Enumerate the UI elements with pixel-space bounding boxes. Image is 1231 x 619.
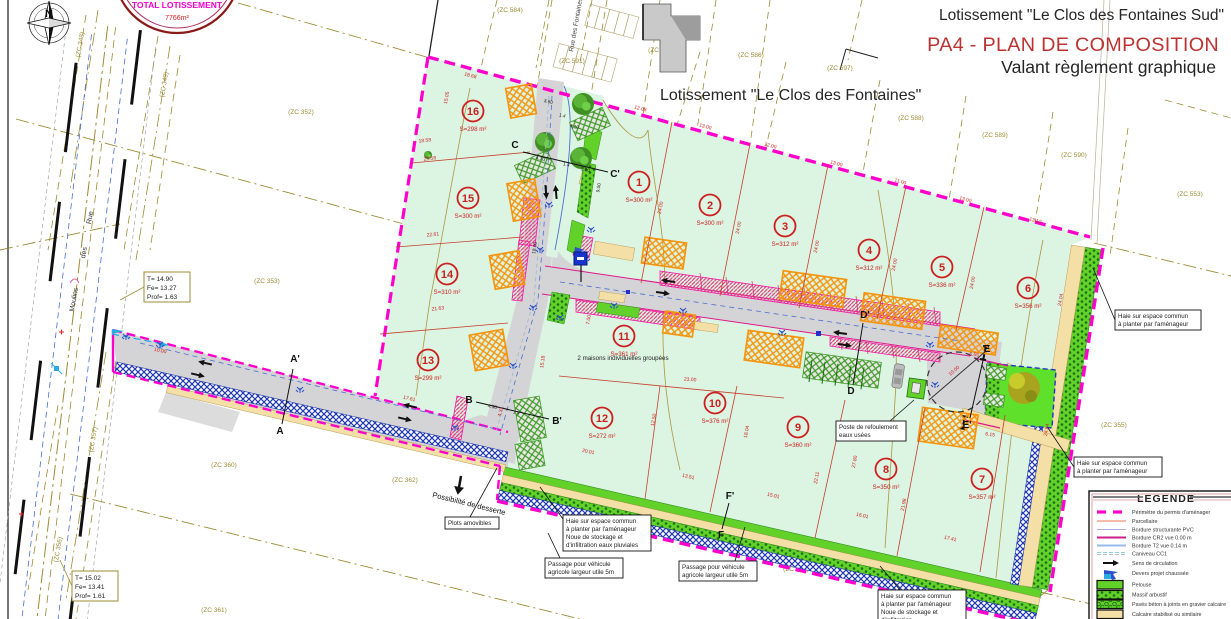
svg-text:10: 10	[709, 398, 721, 410]
svg-text:Pavés béton à joints en gravie: Pavés béton à joints en gravier calcaire	[1132, 602, 1226, 608]
svg-text:(ZC 586): (ZC 586)	[738, 52, 764, 59]
svg-text:Plots amovibles: Plots amovibles	[448, 520, 491, 527]
svg-text:à planter par l'aménageur: à planter par l'aménageur	[1077, 468, 1147, 475]
svg-text:(ZC 597): (ZC 597)	[827, 65, 853, 72]
svg-text:4: 4	[866, 245, 873, 257]
svg-text:S=356 m²: S=356 m²	[1015, 303, 1042, 310]
svg-text:TOTAL LOTISSEMENT: TOTAL LOTISSEMENT	[132, 0, 223, 10]
svg-text:E': E'	[962, 420, 971, 431]
svg-text:C: C	[511, 140, 518, 151]
svg-text:Pelouse: Pelouse	[1132, 583, 1151, 589]
svg-text:Lotissement "Le Clos des Fonta: Lotissement "Le Clos des Fontaines"	[660, 87, 921, 104]
svg-text:S=272 m²: S=272 m²	[589, 433, 616, 440]
svg-text:agricole largeur utile 5m: agricole largeur utile 5m	[548, 569, 614, 576]
svg-text:Passage pour véhicule: Passage pour véhicule	[682, 564, 745, 571]
svg-text:8: 8	[883, 464, 889, 476]
svg-text:Haie sur espace commun: Haie sur espace commun	[566, 518, 637, 525]
svg-text:(ZC 361): (ZC 361)	[201, 607, 227, 614]
svg-text:12: 12	[596, 413, 608, 425]
svg-text:11: 11	[618, 331, 630, 343]
svg-text:(ZC 355): (ZC 355)	[1101, 422, 1127, 429]
svg-text:(ZC 553): (ZC 553)	[1177, 191, 1203, 198]
svg-text:14: 14	[441, 269, 454, 281]
svg-text:F': F'	[726, 491, 735, 502]
svg-text:13: 13	[422, 355, 434, 367]
svg-text:Haie sur espace commun: Haie sur espace commun	[881, 593, 952, 600]
svg-text:S=300 m²: S=300 m²	[626, 197, 653, 204]
svg-text:9: 9	[795, 422, 801, 434]
svg-text:Fe= 13.27: Fe= 13.27	[147, 285, 177, 292]
svg-text:5: 5	[939, 262, 945, 274]
svg-text:Noue de stockage et: Noue de stockage et	[881, 609, 938, 616]
svg-text:(ZC 353): (ZC 353)	[254, 278, 280, 285]
svg-text:Bordure CR2 vue 0.00 m: Bordure CR2 vue 0.00 m	[1132, 536, 1192, 542]
svg-text:(ZC 584): (ZC 584)	[497, 7, 523, 14]
svg-text:Massif arbustif: Massif arbustif	[1132, 593, 1167, 599]
svg-text:Passage pour véhicule: Passage pour véhicule	[548, 561, 611, 568]
svg-text:Périmètre du permis d'aménager: Périmètre du permis d'aménager	[1132, 510, 1211, 516]
svg-text:D: D	[847, 386, 854, 397]
svg-text:S=299 m²: S=299 m²	[415, 375, 442, 382]
svg-text:Poste de refoulement: Poste de refoulement	[839, 424, 898, 431]
svg-text:7: 7	[979, 474, 985, 486]
svg-text:N: N	[45, 8, 53, 20]
svg-text:Devers projet chaussée: Devers projet chaussée	[1132, 571, 1189, 577]
svg-text:PA4 - PLAN DE COMPOSITION: PA4 - PLAN DE COMPOSITION	[927, 34, 1219, 56]
svg-text:d'infiltration eaux pluviales: d'infiltration eaux pluviales	[566, 542, 638, 549]
svg-text:(ZC 360): (ZC 360)	[211, 462, 237, 469]
svg-text:(ZC 589): (ZC 589)	[982, 132, 1008, 139]
svg-text:Parcellaire: Parcellaire	[1132, 519, 1157, 525]
svg-text:S=360 m²: S=360 m²	[785, 442, 812, 449]
svg-text:(ZC 590): (ZC 590)	[1061, 152, 1087, 159]
svg-text:Lotissement "Le Clos des Fonta: Lotissement "Le Clos des Fontaines Sud"	[939, 7, 1224, 24]
svg-text:Prof= 1.61: Prof= 1.61	[75, 593, 106, 600]
svg-text:Haie sur espace commun: Haie sur espace commun	[1118, 313, 1189, 320]
svg-text:T= 15.02: T= 15.02	[75, 575, 101, 582]
svg-text:Bordure structurante PVC: Bordure structurante PVC	[1132, 528, 1194, 534]
svg-text:à planter par l'aménageur: à planter par l'aménageur	[566, 526, 636, 533]
svg-text:Prof= 1.63: Prof= 1.63	[147, 294, 178, 301]
svg-text:F: F	[718, 530, 724, 541]
svg-text:2 maisons individuelles groupé: 2 maisons individuelles groupées	[577, 355, 668, 362]
svg-text:(ZC 588): (ZC 588)	[898, 115, 924, 122]
svg-text:S=312 m²: S=312 m²	[772, 241, 799, 248]
svg-text:Calcaire stabilisé ou similair: Calcaire stabilisé ou similaire	[1132, 612, 1202, 618]
svg-text:A': A'	[290, 354, 300, 365]
svg-text:(ZC 362): (ZC 362)	[392, 477, 418, 484]
svg-text:D': D'	[860, 310, 870, 321]
svg-text:S=298 m²: S=298 m²	[460, 126, 487, 133]
svg-text:6: 6	[1025, 283, 1031, 295]
svg-text:E: E	[984, 344, 991, 355]
svg-text:S=350 m²: S=350 m²	[873, 484, 900, 491]
svg-text:Sens de circulation: Sens de circulation	[1132, 561, 1178, 567]
svg-text:S=310 m²: S=310 m²	[434, 289, 461, 296]
svg-text:15: 15	[462, 193, 474, 205]
svg-text:3: 3	[782, 221, 788, 233]
svg-text:S=376 m²: S=376 m²	[702, 418, 729, 425]
svg-text:(ZC 352): (ZC 352)	[288, 109, 314, 116]
svg-text:Bordure T2 vue 0.14 m: Bordure T2 vue 0.14 m	[1132, 544, 1188, 550]
svg-text:A: A	[276, 426, 283, 437]
svg-text:Haie sur espace commun: Haie sur espace commun	[1077, 460, 1148, 467]
svg-text:7766m²: 7766m²	[165, 15, 189, 22]
svg-text:à planter par l'aménageur: à planter par l'aménageur	[1118, 321, 1188, 328]
svg-text:S=300 m²: S=300 m²	[697, 220, 724, 227]
svg-text:(ZC 591): (ZC 591)	[559, 58, 585, 65]
svg-text:à planter par l'aménageur: à planter par l'aménageur	[881, 601, 951, 608]
svg-text:agricole largeur utile 5m: agricole largeur utile 5m	[682, 572, 748, 579]
svg-text:Noue de stockage et: Noue de stockage et	[566, 534, 623, 541]
svg-text:LEGENDE: LEGENDE	[1137, 493, 1195, 505]
svg-text:S=357 m²: S=357 m²	[969, 494, 996, 501]
svg-text:eaux usées: eaux usées	[839, 432, 871, 439]
svg-text:16: 16	[467, 106, 479, 118]
svg-text:S=312 m²: S=312 m²	[856, 265, 883, 272]
svg-text:B': B'	[552, 416, 562, 427]
svg-text:S=300 m²: S=300 m²	[455, 213, 482, 220]
svg-text:1: 1	[636, 177, 642, 189]
svg-text:2: 2	[707, 200, 713, 212]
svg-text:S=336 m²: S=336 m²	[929, 282, 956, 289]
svg-text:Fe= 13.41: Fe= 13.41	[75, 584, 105, 591]
svg-text:B: B	[465, 395, 472, 406]
svg-text:23.00: 23.00	[684, 376, 697, 383]
svg-text:Caniveau CC1: Caniveau CC1	[1132, 552, 1167, 558]
svg-text:C': C'	[610, 169, 620, 180]
svg-text:Valant règlement graphique: Valant règlement graphique	[1001, 57, 1216, 77]
svg-text:T= 14.90: T= 14.90	[147, 276, 173, 283]
